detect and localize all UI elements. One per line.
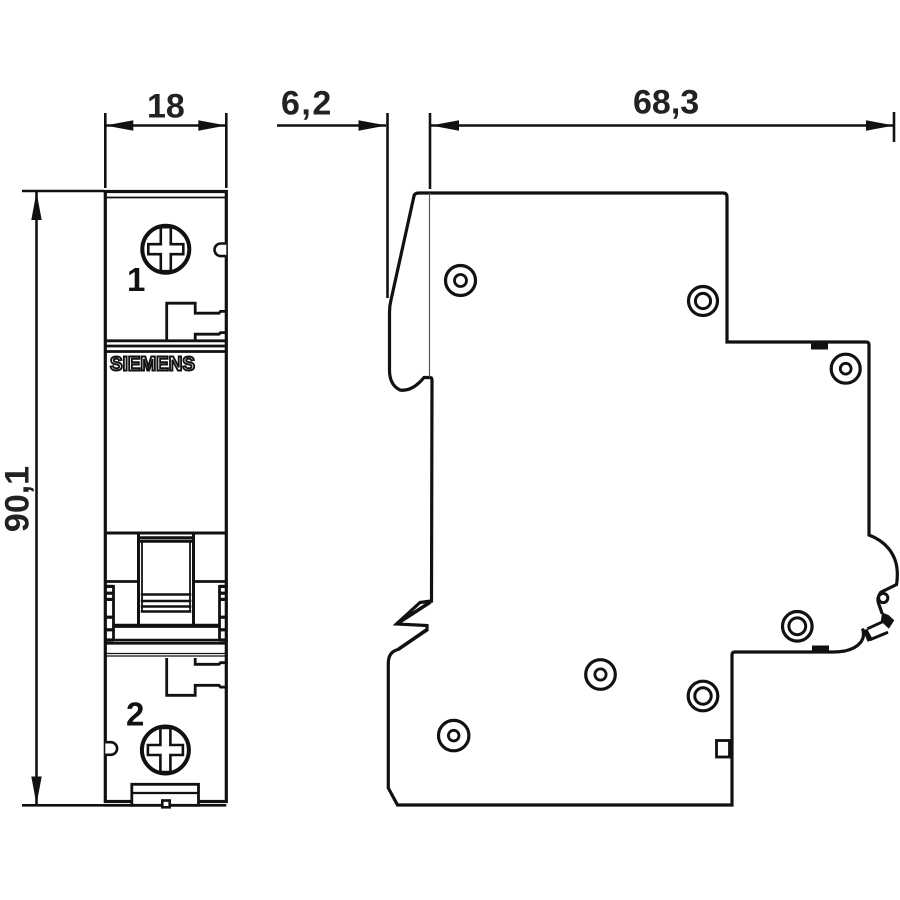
svg-text:1: 1 — [127, 261, 145, 298]
svg-text:68,3: 68,3 — [633, 84, 699, 122]
svg-text:18: 18 — [147, 88, 185, 126]
svg-text:SIEMENS: SIEMENS — [110, 353, 195, 376]
svg-text:6,2: 6,2 — [281, 85, 333, 123]
svg-text:90,1: 90,1 — [0, 466, 37, 532]
svg-text:2: 2 — [126, 696, 144, 733]
